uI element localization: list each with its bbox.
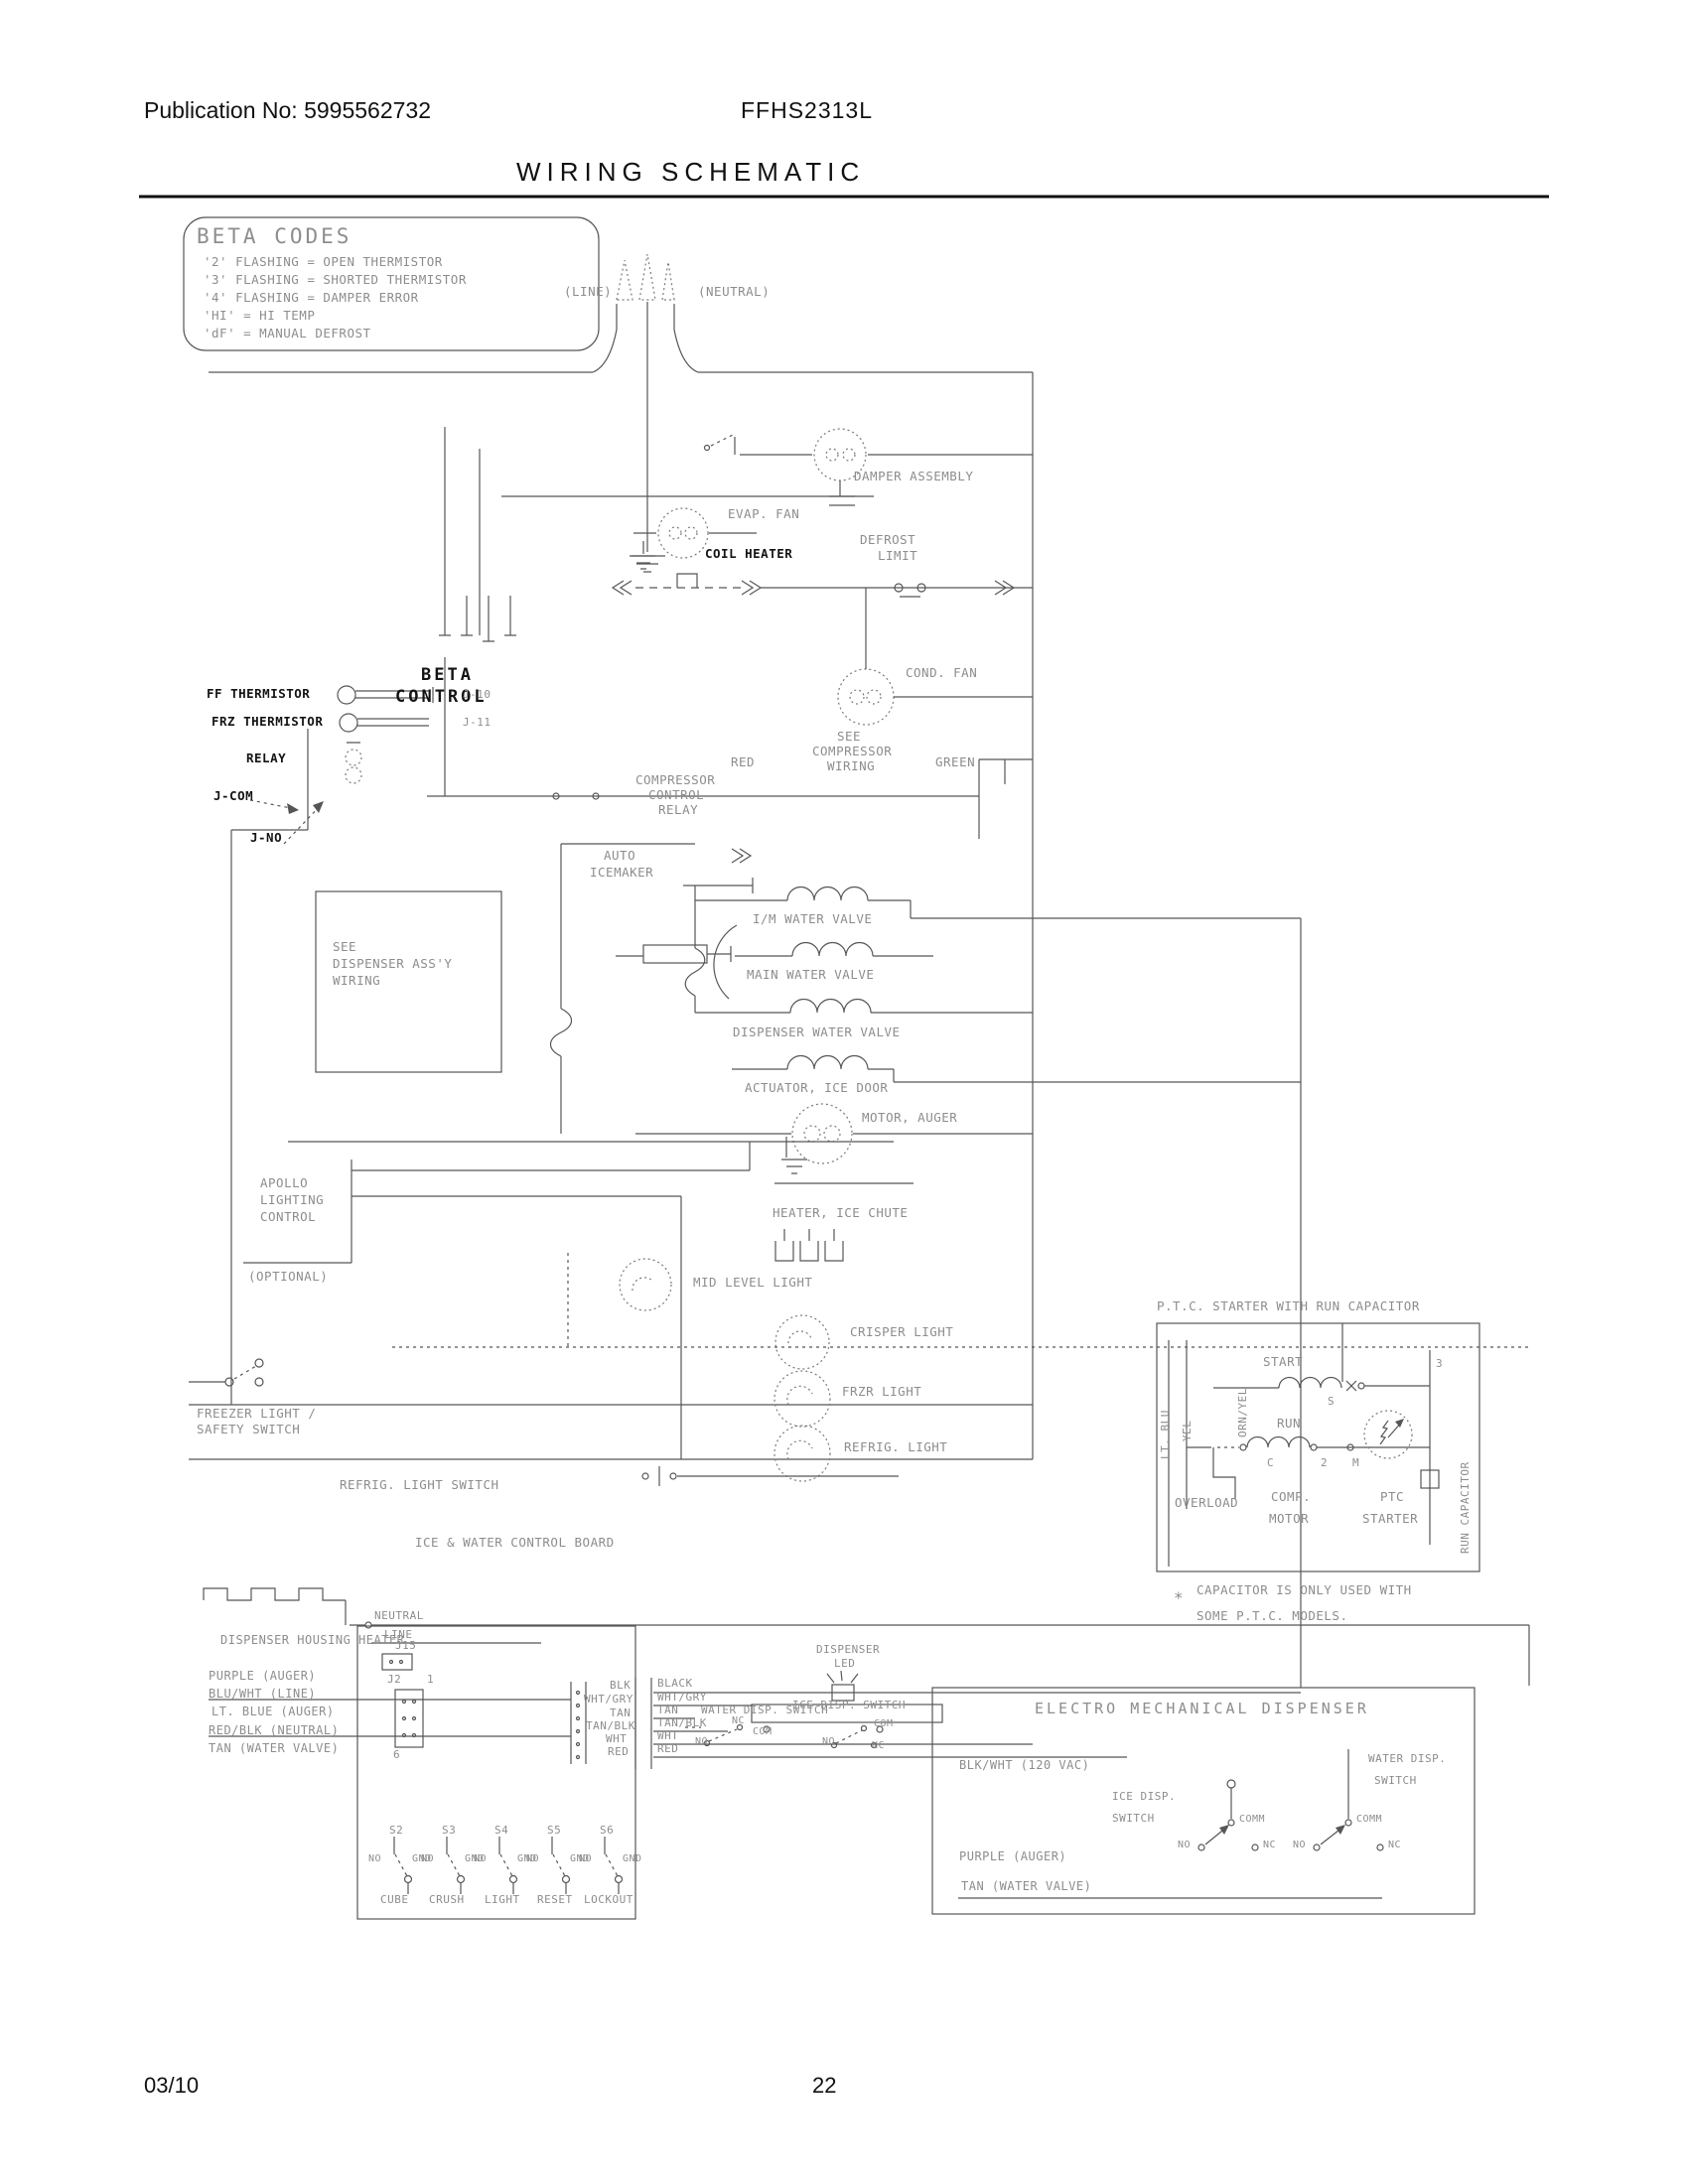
wire-tan-blk-label: TAN/BLK (657, 1717, 707, 1728)
j2-pin1-label: 1 (427, 1674, 434, 1685)
switch-crush-label: CRUSH (429, 1894, 465, 1905)
switch-lockout-label: LOCKOUT (584, 1894, 633, 1905)
switch-s5-no-label: NO (526, 1854, 539, 1864)
red-blk-neutral-label: RED/BLK (NEUTRAL) (209, 1724, 339, 1736)
wire-tan-label: TAN (657, 1705, 678, 1715)
compressor-control-relay-label-3: RELAY (658, 804, 698, 817)
beta-control-label-1: BETA (421, 667, 474, 684)
switch-s2-designator: S2 (389, 1825, 403, 1836)
switch-s4-no-label: NO (474, 1854, 487, 1864)
see-dispenser-label-1: SEE (333, 941, 356, 954)
pin-tan-label: TAN (610, 1707, 631, 1718)
freezer-light-switch-label-1: FREEZER LIGHT / (197, 1408, 316, 1421)
j2-connector-label: J2 (387, 1674, 401, 1685)
compressor-control-relay-label-1: COMPRESSOR (635, 774, 715, 787)
line-label: (LINE) (564, 286, 612, 299)
see-compressor-label-1: SEE (837, 731, 861, 744)
pin-wht-gry-label: WHT/GRY (584, 1694, 633, 1705)
switch-s6-designator: S6 (600, 1825, 614, 1836)
emd-tan-water-valve-label: TAN (WATER VALVE) (961, 1880, 1091, 1892)
see-compressor-label-2: COMPRESSOR (812, 746, 892, 758)
ice-switch-nc-label: NC (872, 1741, 885, 1751)
mid-level-light-label: MID LEVEL LIGHT (693, 1277, 812, 1290)
im-water-valve-label: I/M WATER VALVE (753, 913, 872, 926)
pin-tan-blk-label: TAN/BLK (586, 1720, 635, 1731)
ff-thermistor-label: FF THERMISTOR (207, 688, 310, 701)
switch-s5-designator: S5 (547, 1825, 561, 1836)
water-switch-no-label: NO (695, 1737, 708, 1747)
emd-purple-auger-label: PURPLE (AUGER) (959, 1850, 1066, 1862)
emd-blk-wht-label: BLK/WHT (120 VAC) (959, 1759, 1089, 1771)
ice-water-board-title: ICE & WATER CONTROL BOARD (415, 1537, 615, 1550)
auto-icemaker-label-2: ICEMAKER (590, 867, 653, 880)
emd-ice-comm-label: COMM (1239, 1815, 1265, 1825)
emd-water-disp-label-1: WATER DISP. (1368, 1753, 1446, 1764)
ice-switch-com-label: COM (874, 1719, 894, 1729)
blu-wht-line-label: BLU/WHT (LINE) (209, 1688, 316, 1700)
wire-black-label: BLACK (657, 1678, 693, 1689)
switch-s6-no-label: NO (579, 1854, 592, 1864)
capacitor-note-2: SOME P.T.C. MODELS. (1196, 1610, 1348, 1623)
water-switch-com-label: COM (753, 1727, 773, 1737)
switch-light-label: LIGHT (485, 1894, 520, 1905)
auto-icemaker-label-1: AUTO (604, 850, 635, 863)
see-compressor-label-3: WIRING (827, 760, 875, 773)
switch-s4-designator: S4 (494, 1825, 508, 1836)
neutral-wire-label: NEUTRAL (374, 1610, 424, 1621)
purple-auger-label: PURPLE (AUGER) (209, 1670, 316, 1682)
wire-red-label: RED (657, 1743, 678, 1754)
pin-blk-label: BLK (610, 1680, 631, 1691)
emd-ice-disp-label-1: ICE DISP. (1112, 1791, 1176, 1802)
optional-label: (OPTIONAL) (248, 1271, 328, 1284)
dispenser-led-label-1: DISPENSER (816, 1644, 880, 1655)
heater-ice-chute-label: HEATER, ICE CHUTE (773, 1207, 908, 1220)
j2-pin6-label: 6 (393, 1749, 400, 1760)
beta-codes-title: BETA CODES (197, 226, 352, 247)
capacitor-note-1: CAPACITOR IS ONLY USED WITH (1196, 1584, 1412, 1597)
apollo-label-3: CONTROL (260, 1211, 316, 1224)
ptc-terminal-s: S (1328, 1396, 1335, 1407)
frz-thermistor-pin-label: J-11 (463, 717, 492, 728)
main-water-valve-label: MAIN WATER VALVE (747, 969, 874, 982)
lt-blue-auger-label: LT. BLUE (AUGER) (211, 1706, 335, 1717)
beta-code-hi: 'HI' = HI TEMP (204, 310, 315, 323)
refrig-light-label: REFRIG. LIGHT (844, 1441, 947, 1454)
actuator-ice-door-label: ACTUATOR, ICE DOOR (745, 1082, 888, 1095)
ptc-orn-yel-wire-label: ORN/YEL (1237, 1388, 1248, 1437)
footer-date: 03/10 (144, 2073, 199, 2099)
apollo-label-2: LIGHTING (260, 1194, 324, 1207)
switch-cube-label: CUBE (380, 1894, 409, 1905)
beta-code-3: '3' FLASHING = SHORTED THERMISTOR (204, 274, 467, 287)
water-switch-nc-label: NC (732, 1716, 745, 1726)
switch-s2-no-label: NO (368, 1854, 381, 1864)
emd-water-no-label: NO (1293, 1841, 1306, 1850)
frzr-light-label: FRZR LIGHT (842, 1386, 921, 1399)
dispenser-housing-heater-label: DISPENSER HOUSING HEATER (220, 1634, 404, 1646)
beta-code-df: 'dF' = MANUAL DEFROST (204, 328, 371, 341)
ptc-terminal-2: 2 (1321, 1457, 1328, 1468)
defrost-limit-label-1: DEFROST (860, 534, 915, 547)
ptc-comp-motor-label-2: MOTOR (1269, 1513, 1309, 1526)
wire-wht-label: WHT (657, 1730, 678, 1741)
ptc-run-winding-label: RUN (1277, 1418, 1301, 1431)
j-no-label: J-NO (250, 832, 282, 845)
ptc-terminal-3: 3 (1436, 1358, 1443, 1369)
evap-fan-label: EVAP. FAN (728, 508, 799, 521)
emd-ice-disp-label-2: SWITCH (1112, 1813, 1155, 1824)
defrost-limit-label-2: LIMIT (878, 550, 917, 563)
motor-auger-label: MOTOR, AUGER (862, 1112, 957, 1125)
diagram-labels: BETA CODES'2' FLASHING = OPEN THERMISTOR… (0, 0, 1688, 2184)
switch-s3-no-label: NO (421, 1854, 434, 1864)
ptc-terminal-m: M (1352, 1457, 1359, 1468)
ptc-box-title: P.T.C. STARTER WITH RUN CAPACITOR (1157, 1300, 1420, 1313)
manual-page: Publication No: 5995562732 FFHS2313L WIR… (0, 0, 1688, 2184)
ptc-terminal-c: C (1267, 1457, 1274, 1468)
switch-s6-gnd-label: GND (623, 1854, 642, 1864)
beta-code-2: '2' FLASHING = OPEN THERMISTOR (204, 256, 443, 269)
switch-reset-label: RESET (537, 1894, 573, 1905)
emd-ice-no-label: NO (1178, 1841, 1191, 1850)
ptc-overload-label: OVERLOAD (1175, 1497, 1238, 1510)
refrig-light-switch-label: REFRIG. LIGHT SWITCH (340, 1479, 499, 1492)
cond-fan-label: COND. FAN (906, 667, 977, 680)
relay-label: RELAY (246, 752, 286, 765)
tan-water-valve-label: TAN (WATER VALVE) (209, 1742, 339, 1754)
dispenser-water-valve-label: DISPENSER WATER VALVE (733, 1026, 901, 1039)
ice-switch-no-label: NO (822, 1737, 835, 1747)
crisper-light-label: CRISPER LIGHT (850, 1326, 953, 1339)
ptc-comp-motor-label-1: COMP. (1271, 1491, 1311, 1504)
see-dispenser-label-3: WIRING (333, 975, 380, 988)
frz-thermistor-label: FRZ THERMISTOR (211, 716, 323, 729)
compressor-control-relay-label-2: CONTROL (648, 789, 704, 802)
neutral-label: (NEUTRAL) (698, 286, 770, 299)
red-wire-label: RED (731, 756, 755, 769)
beta-code-4: '4' FLASHING = DAMPER ERROR (204, 292, 419, 305)
see-dispenser-label-2: DISPENSER ASS'Y (333, 958, 452, 971)
damper-assembly-label: DAMPER ASSEMBLY (854, 471, 973, 483)
footer-page-number: 22 (812, 2073, 836, 2099)
emd-box-title: ELECTRO MECHANICAL DISPENSER (1035, 1702, 1369, 1716)
wire-wht-gry-label: WHT/GRY (657, 1692, 707, 1703)
j15-connector-label: J15 (395, 1640, 416, 1651)
switch-s3-designator: S3 (442, 1825, 456, 1836)
water-disp-switch-label: WATER DISP. SWITCH (701, 1705, 828, 1715)
freezer-light-switch-label-2: SAFETY SWITCH (197, 1424, 300, 1436)
ptc-run-capacitor-label: RUN CAPACITOR (1460, 1461, 1471, 1554)
pin-red-label: RED (608, 1746, 629, 1757)
emd-water-disp-label-2: SWITCH (1374, 1775, 1417, 1786)
dispenser-led-label-2: LED (834, 1658, 855, 1669)
ptc-lt-blu-wire-label: LT. BLU (1160, 1410, 1171, 1459)
green-wire-label: GREEN (935, 756, 975, 769)
ptc-yel-wire-label: YEL (1182, 1421, 1193, 1441)
ptc-start-winding-label: START (1263, 1356, 1303, 1369)
capacitor-note-star: * (1174, 1590, 1184, 1606)
j-com-label: J-COM (213, 790, 253, 803)
coil-heater-label: COIL HEATER (705, 548, 792, 561)
ptc-starter-label-1: PTC (1380, 1491, 1404, 1504)
ptc-starter-label-2: STARTER (1362, 1513, 1418, 1526)
pin-wht-label: WHT (606, 1733, 627, 1744)
emd-water-nc-label: NC (1388, 1841, 1401, 1850)
emd-water-comm-label: COMM (1356, 1815, 1382, 1825)
apollo-label-1: APOLLO (260, 1177, 308, 1190)
emd-ice-nc-label: NC (1263, 1841, 1276, 1850)
ff-thermistor-pin-label: J-10 (463, 689, 492, 700)
